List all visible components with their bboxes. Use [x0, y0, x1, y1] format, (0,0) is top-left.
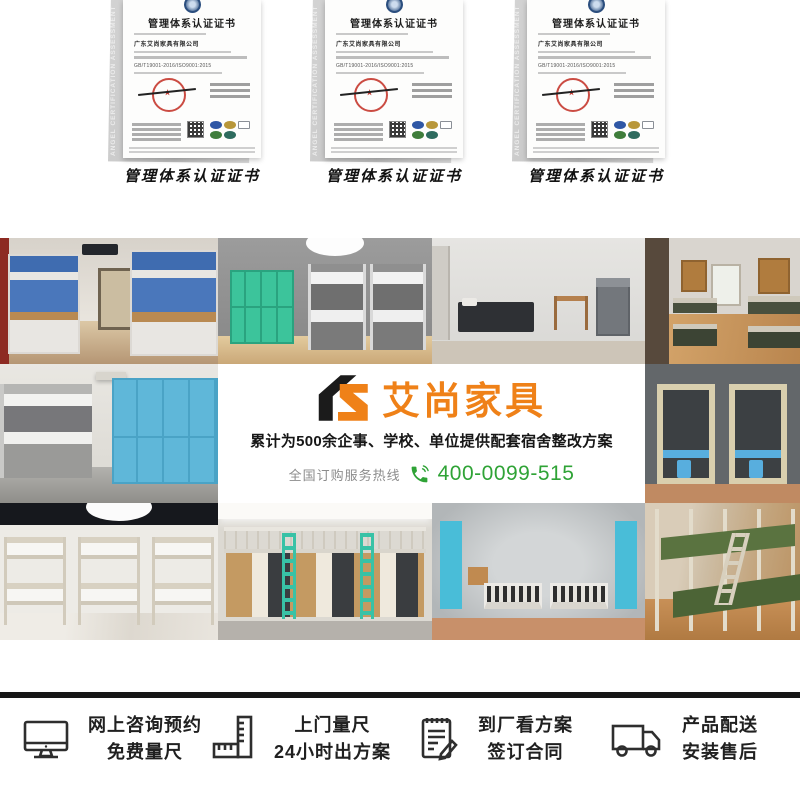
issuer-lines: [334, 121, 383, 141]
service-item-factory-contract: 到厂看方案 签订合同: [412, 708, 573, 770]
certificate-caption: 管理体系认证证书: [92, 165, 292, 186]
issue-dates: [412, 80, 452, 98]
brand-name: 艾尚家具: [382, 383, 546, 421]
issue-dates: [614, 80, 654, 98]
gallery-photo-blue-bunk-dorm: [0, 238, 218, 364]
service-text: 网上咨询预约 免费量尺: [88, 712, 202, 766]
service-line2: 24小时出方案: [274, 739, 391, 766]
certificate-company: 广东艾尚家具有限公司: [134, 39, 250, 48]
certificate-title: 管理体系认证证书: [325, 15, 463, 30]
hotline-number: 400-0099-515: [438, 462, 575, 486]
cert-number-line: [134, 33, 206, 35]
accreditation-badges: [412, 121, 454, 139]
service-item-delivery-install: 产品配送 安装售后: [608, 708, 758, 770]
service-line1: 网上咨询预约: [88, 712, 202, 739]
gallery-photo-gray-bunks-blue-wardrobes: [0, 364, 218, 503]
certifier-emblem-icon: [184, 0, 201, 13]
seal-row: [134, 78, 250, 114]
certificate-block-1: ANGEL CERTIFICATION ASSESSMENT SERVICES …: [92, 0, 292, 200]
certificate-standard: GB/T19001-2016/ISO9001:2015: [336, 63, 452, 69]
certificate-footer: [334, 117, 454, 141]
phone-icon: [409, 464, 430, 485]
folder-vertical-text: ANGEL CERTIFICATION ASSESSMENT SERVICES: [312, 6, 319, 156]
qr-code-icon: [591, 121, 608, 138]
certificate-standard: GB/T19001-2016/ISO9001:2015: [134, 63, 250, 69]
promo-page: ANGEL CERTIFICATION ASSESSMENT SERVICES …: [0, 0, 800, 800]
issue-dates: [210, 80, 250, 98]
service-line1: 产品配送: [682, 712, 758, 739]
certificate-block-3: ANGEL CERTIFICATION ASSESSMENT SERVICES …: [496, 0, 696, 200]
contract-icon: [412, 713, 462, 765]
fine-print: [129, 145, 255, 153]
truck-icon: [608, 713, 666, 765]
service-line2: 免费量尺: [88, 739, 202, 766]
certificate-document: 管理体系认证证书 广东艾尚家具有限公司 GB/T19001-2016/ISO90…: [123, 0, 261, 158]
certificate-footer: [536, 117, 656, 141]
service-line1: 到厂看方案: [478, 712, 573, 739]
qr-code-icon: [389, 121, 406, 138]
gallery-photo-striped-beds-blue-doors: [432, 503, 645, 640]
accreditation-badges: [614, 121, 656, 139]
certifier-emblem-icon: [386, 0, 403, 13]
service-item-onsite-measure: 上门量尺 24小时出方案: [210, 708, 391, 770]
fine-print: [331, 145, 457, 153]
service-text: 产品配送 安装售后: [682, 712, 758, 766]
certificate-footer: [132, 117, 252, 141]
section-divider: [0, 692, 800, 698]
issuer-lines: [132, 121, 181, 141]
gallery-photo-single-bed-room: [432, 238, 645, 364]
service-line2: 安装售后: [682, 739, 758, 766]
certificate-standard: GB/T19001-2016/ISO9001:2015: [538, 63, 654, 69]
gallery-photo-dark-room-loft-desks: [645, 364, 800, 503]
issuer-lines: [536, 121, 585, 141]
qr-code-icon: [187, 121, 204, 138]
hotline-label: 全国订购服务热线: [289, 465, 401, 484]
cert-text-line: [336, 51, 433, 53]
certificate-block-2: ANGEL CERTIFICATION ASSESSMENT SERVICES …: [294, 0, 494, 200]
red-seal-icon: [354, 78, 388, 112]
red-seal-icon: [556, 78, 590, 112]
cert-text-line: [538, 51, 635, 53]
certificate-title: 管理体系认证证书: [527, 15, 665, 30]
certificate-caption: 管理体系认证证书: [294, 165, 494, 186]
cert-scope-line: [336, 72, 424, 74]
service-item-online-consult: 网上咨询预约 免费量尺: [20, 708, 202, 770]
certifier-emblem-icon: [588, 0, 605, 13]
seal-row: [336, 78, 452, 114]
cert-text-line: [538, 56, 651, 59]
cert-text-line: [336, 56, 449, 59]
service-line2: 签订合同: [478, 739, 573, 766]
cert-scope-line: [134, 72, 222, 74]
cert-number-line: [336, 33, 408, 35]
certificate-title: 管理体系认证证书: [123, 15, 261, 30]
certificate-document: 管理体系认证证书 广东艾尚家具有限公司 GB/T19001-2016/ISO90…: [325, 0, 463, 158]
folder-vertical-text: ANGEL CERTIFICATION ASSESSMENT SERVICES: [514, 6, 521, 156]
certificate-company: 广东艾尚家具有限公司: [538, 39, 654, 48]
service-line1: 上门量尺: [274, 712, 391, 739]
as-logo-mark-icon: [317, 375, 373, 421]
brand-banner: 艾尚家具 累计为500余企事、学校、单位提供配套宿舍整改方案 全国订购服务热线 …: [218, 364, 645, 503]
hotline-row: 全国订购服务热线 400-0099-515: [289, 462, 575, 486]
service-text: 上门量尺 24小时出方案: [274, 712, 391, 766]
accreditation-badges: [210, 121, 252, 139]
gallery-photo-three-bunks-marble: [0, 503, 218, 640]
ruler-icon: [210, 713, 258, 765]
monitor-icon: [20, 713, 72, 765]
banner-headline: 累计为500余企事、学校、单位提供配套宿舍整改方案: [250, 430, 613, 451]
cert-scope-line: [538, 72, 626, 74]
certificate-caption: 管理体系认证证书: [496, 165, 696, 186]
cert-text-line: [134, 56, 247, 59]
cert-number-line: [538, 33, 610, 35]
gallery-photo-green-deck-bunks: [645, 503, 800, 640]
brand-logo: 艾尚家具: [317, 373, 546, 421]
service-text: 到厂看方案 签订合同: [478, 712, 573, 766]
gallery-photo-wood-floor-dorm: [645, 238, 800, 364]
cert-text-line: [134, 51, 231, 53]
red-seal-icon: [152, 78, 186, 112]
certificate-company: 广东艾尚家具有限公司: [336, 39, 452, 48]
fine-print: [533, 145, 659, 153]
folder-vertical-text: ANGEL CERTIFICATION ASSESSMENT SERVICES: [110, 6, 117, 156]
certificate-document: 管理体系认证证书 广东艾尚家具有限公司 GB/T19001-2016/ISO90…: [527, 0, 665, 158]
seal-row: [538, 78, 654, 114]
gallery-photo-loft-beds-teal-ladders: [218, 503, 432, 640]
gallery-photo-teal-lockers-bunks: [218, 238, 432, 364]
